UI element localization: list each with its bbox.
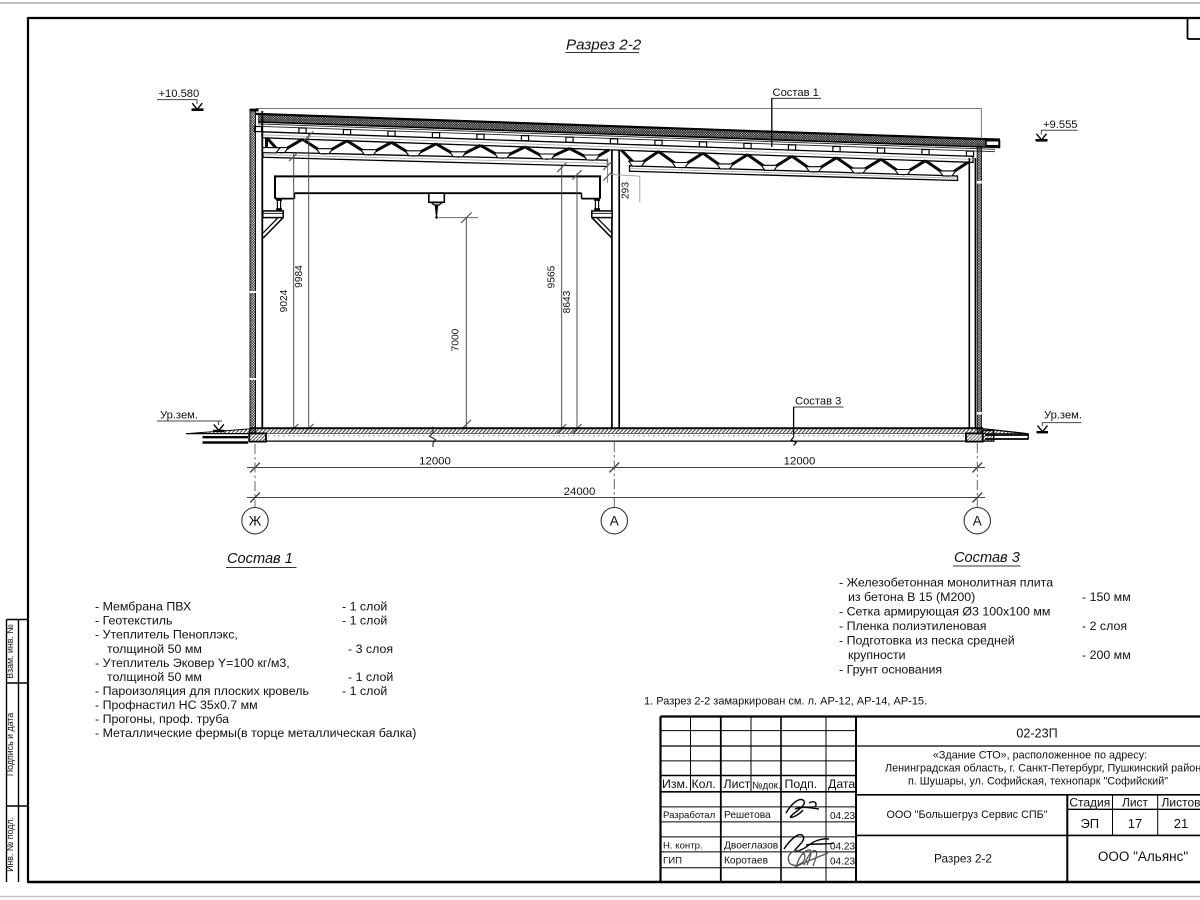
svg-text:«Здание СТО», расположенное по: «Здание СТО», расположенное по адресу: (933, 750, 1147, 762)
svg-text:Кол.: Кол. (692, 777, 716, 791)
svg-text:9984: 9984 (294, 265, 305, 288)
svg-text:- Пароизоляция для плоских кро: - Пароизоляция для плоских кровель (95, 684, 309, 698)
svg-text:- Мембрана ПВХ: - Мембрана ПВХ (95, 600, 191, 614)
svg-text:Ур.зем.: Ур.зем. (160, 409, 198, 421)
svg-text:ГИП: ГИП (663, 856, 682, 867)
svg-text:- Прогоны, проф. труба: - Прогоны, проф. труба (95, 712, 229, 726)
svg-text:1. Разрез 2-2 замаркирован см.: 1. Разрез 2-2 замаркирован см. л. АР-12,… (644, 696, 927, 708)
svg-text:- Сетка армирующая Ø3 100х100: - Сетка армирующая Ø3 100х100 мм (839, 605, 1050, 619)
svg-text:293: 293 (621, 182, 632, 199)
svg-text:24000: 24000 (564, 486, 596, 498)
svg-text:из бетона В 15 (М200): из бетона В 15 (М200) (848, 590, 975, 604)
svg-text:п. Шушары, ул. Софийская, техн: п. Шушары, ул. Софийская, технопарк "Соф… (908, 776, 1168, 788)
svg-text:Коротаев: Коротаев (724, 856, 768, 867)
svg-text:Состав 1: Состав 1 (227, 551, 293, 567)
svg-text:8643: 8643 (562, 290, 573, 313)
svg-text:- 2 слоя: - 2 слоя (1082, 619, 1127, 633)
svg-text:Состав 3: Состав 3 (795, 396, 841, 408)
svg-text:Изм.: Изм. (662, 777, 688, 791)
svg-text:- Грунт основания: - Грунт основания (839, 663, 942, 677)
svg-text:04.23: 04.23 (830, 857, 855, 868)
svg-text:- 150 мм: - 150 мм (1082, 590, 1131, 604)
svg-text:крупности: крупности (848, 648, 906, 662)
svg-text:12000: 12000 (419, 456, 451, 468)
svg-text:А: А (973, 514, 982, 529)
svg-text:Лист: Лист (724, 777, 751, 791)
svg-text:Состав 3: Состав 3 (954, 550, 1020, 566)
svg-text:Подпись и дата: Подпись и дата (5, 713, 15, 776)
svg-text:Ленинградская область, г. Санк: Ленинградская область, г. Санкт-Петербур… (885, 763, 1200, 775)
svg-text:04.23: 04.23 (830, 811, 855, 822)
svg-text:Ж: Ж (249, 514, 262, 529)
svg-text:- 1 слой: - 1 слой (348, 670, 393, 684)
svg-text:12000: 12000 (784, 456, 816, 468)
svg-text:Подп.: Подп. (785, 777, 818, 791)
svg-text:Н. контр.: Н. контр. (663, 841, 703, 852)
svg-text:Листов: Листов (1162, 796, 1200, 810)
svg-text:9565: 9565 (547, 265, 558, 288)
svg-text:Двоеглазов: Двоеглазов (724, 841, 778, 852)
svg-text:Ур.зем.: Ур.зем. (1044, 409, 1082, 421)
svg-text:Лист: Лист (1122, 796, 1149, 810)
svg-text:ООО "Большегруз Сервис СПБ": ООО "Большегруз Сервис СПБ" (886, 809, 1047, 821)
svg-text:- 200 мм: - 200 мм (1082, 648, 1131, 662)
svg-text:21: 21 (1174, 816, 1188, 831)
svg-text:- Железобетонная монолитная п: - Железобетонная монолитная плита (839, 576, 1053, 590)
svg-text:- Металлические фермы(в торце: - Металлические фермы(в торце металличес… (95, 726, 416, 740)
svg-text:- Пленка полиэтиленовая: - Пленка полиэтиленовая (839, 619, 987, 633)
svg-text:Взам. инв. №: Взам. инв. № (5, 624, 15, 679)
svg-text:Разрез 2-2: Разрез 2-2 (566, 37, 642, 54)
svg-text:толщиной 50 мм: толщиной 50 мм (107, 642, 202, 656)
svg-text:ООО "Альянс": ООО "Альянс" (1098, 849, 1188, 864)
svg-text:Инв. № подл.: Инв. № подл. (5, 817, 15, 872)
svg-text:Стадия: Стадия (1069, 796, 1110, 810)
svg-text:- Утеплитель Пеноплэкс,: - Утеплитель Пеноплэкс, (95, 628, 238, 642)
svg-text:Состав 1: Состав 1 (773, 87, 819, 99)
svg-text:толщиной 50 мм: толщиной 50 мм (107, 670, 202, 684)
svg-text:ЭП: ЭП (1080, 816, 1099, 831)
svg-text:- Подготовка из песка средней: - Подготовка из песка средней (839, 634, 1015, 648)
svg-text:- Профнастил НС 35х0.7 мм: - Профнастил НС 35х0.7 мм (95, 698, 258, 712)
svg-text:+9.555: +9.555 (1043, 119, 1078, 131)
svg-text:№док.: №док. (752, 781, 781, 792)
svg-text:+10.580: +10.580 (159, 88, 200, 100)
svg-text:- 1 слой: - 1 слой (342, 614, 387, 628)
svg-text:А: А (610, 514, 619, 529)
svg-text:- 1 слой: - 1 слой (342, 684, 387, 698)
svg-text:- Геотекстиль: - Геотекстиль (95, 614, 172, 628)
svg-text:- Утеплитель Эковер Y=100 кг/м: - Утеплитель Эковер Y=100 кг/м3, (95, 656, 290, 670)
svg-text:02-23П: 02-23П (1016, 727, 1057, 741)
svg-text:Дата: Дата (828, 777, 855, 791)
svg-text:Разрез 2-2: Разрез 2-2 (934, 852, 992, 866)
svg-text:- 3 слоя: - 3 слоя (348, 642, 393, 656)
svg-text:9024: 9024 (279, 289, 290, 312)
svg-text:Разработал: Разработал (663, 810, 715, 821)
svg-text:- 1 слой: - 1 слой (342, 600, 387, 614)
svg-text:7000: 7000 (451, 328, 462, 351)
svg-text:17: 17 (1128, 816, 1142, 831)
svg-text:Решетова: Решетова (724, 810, 771, 821)
